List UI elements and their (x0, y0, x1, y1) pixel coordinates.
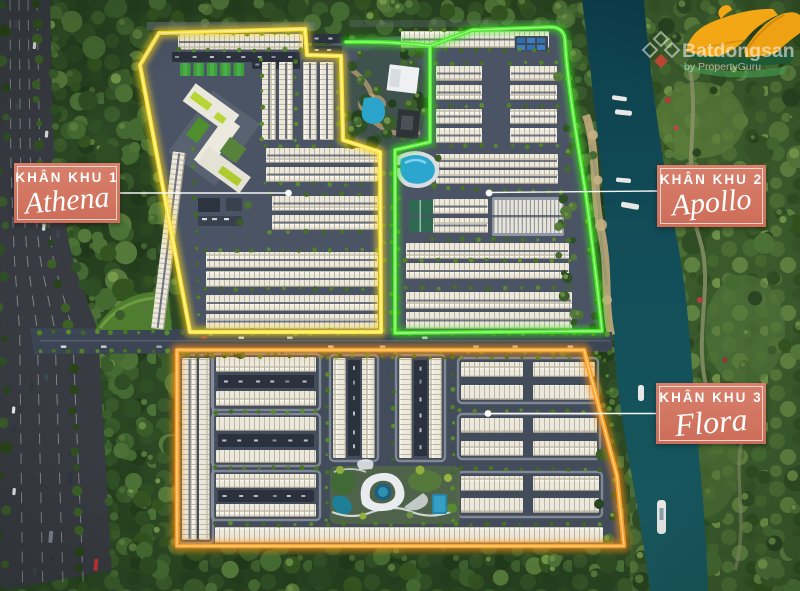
svg-text:Batdongsan: Batdongsan (682, 40, 795, 62)
svg-text:by PropertyGuru: by PropertyGuru (684, 61, 761, 73)
